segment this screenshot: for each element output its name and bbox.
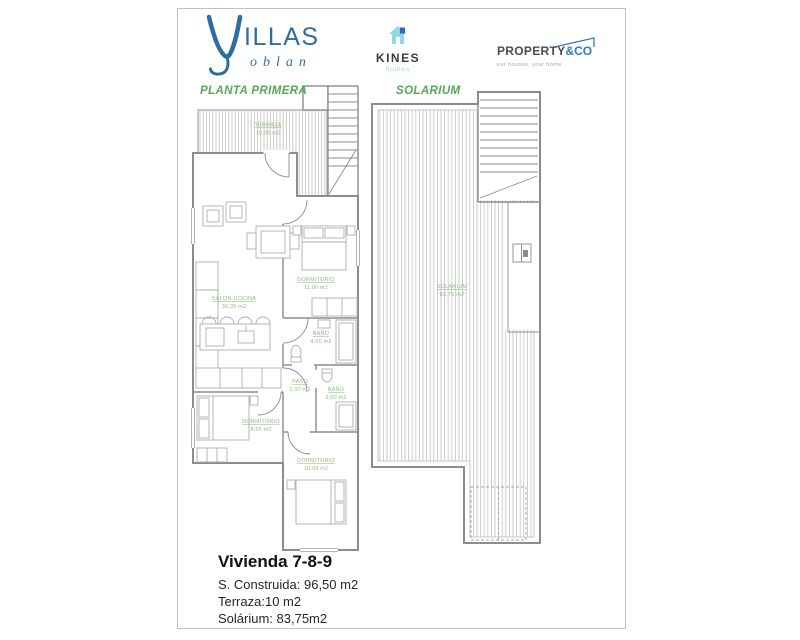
property-roofline-icon xyxy=(554,36,600,49)
label-paso: PASO xyxy=(292,379,308,385)
label-bano1-area: 4,00 m2 xyxy=(310,339,331,345)
villas-logo-title: ILLAS xyxy=(244,23,320,52)
kines-logo-icon xyxy=(387,25,409,45)
kitchen-counter xyxy=(196,368,281,388)
label-solarium: SOLARIUM xyxy=(437,284,468,290)
label-bano2: BAÑO xyxy=(328,386,345,393)
label-dormitorio2-area: 8,65 m2 xyxy=(250,427,271,433)
label-terraza: TERRAZA xyxy=(254,123,281,129)
kines-logo: KINES homes xyxy=(369,25,427,73)
label-dormitorio1-area: 11,00 m2 xyxy=(304,285,328,291)
label-solarium-area: 83,75 m2 xyxy=(440,292,465,298)
summary-solarium: Solárium: 83,75m2 xyxy=(218,610,358,627)
plan-title-planta-primera: PLANTA PRIMERA xyxy=(200,85,307,97)
planta-primera-plan: TERRAZA 10,00 m2 SALON-COCINA 30,35 m2 D… xyxy=(191,86,360,552)
property-logo: PROPERTY&CO our houses, your home xyxy=(497,42,627,68)
kines-logo-subtitle: homes xyxy=(369,66,427,73)
label-terraza-area: 10,00 m2 xyxy=(256,131,281,137)
label-paso-area: 2,00 m2 xyxy=(289,387,310,393)
label-salon: SALON-COCINA xyxy=(212,296,256,302)
villas-logo: ILLAS oblan xyxy=(206,12,346,82)
door-opening xyxy=(264,150,290,156)
summary-built-area: S. Construida: 96,50 m2 xyxy=(218,576,358,593)
floor-plan-sheet: TERRAZA 10,00 m2 SALON-COCINA 30,35 m2 D… xyxy=(0,0,800,640)
summary-terrace: Terraza:10 m2 xyxy=(218,593,358,610)
kines-logo-title: KINES xyxy=(369,51,427,65)
label-bano2-area: 3,00 m2 xyxy=(325,395,346,401)
solarium-plan: SOLARIUM 83,75 m2 xyxy=(372,92,540,543)
label-dormitorio2: DORMITORIO xyxy=(242,419,280,425)
label-dormitorio1: DORMITORIO xyxy=(297,277,335,283)
label-salon-area: 30,35 m2 xyxy=(222,304,247,310)
label-dormitorio3-area: 10,99 m2 xyxy=(304,466,329,472)
plan-title-solarium: SOLARIUM xyxy=(396,85,461,97)
villas-logo-subtitle: oblan xyxy=(250,55,312,71)
property-logo-tagline: our houses, your home xyxy=(497,62,627,68)
summary-title: Vivienda 7-8-9 xyxy=(218,552,358,572)
bedroom3-furniture xyxy=(287,480,346,524)
label-bano1: BAÑO xyxy=(313,330,330,337)
label-dormitorio3: DORMITORIO xyxy=(297,458,335,464)
summary-block: Vivienda 7-8-9 S. Construida: 96,50 m2 T… xyxy=(218,552,358,627)
